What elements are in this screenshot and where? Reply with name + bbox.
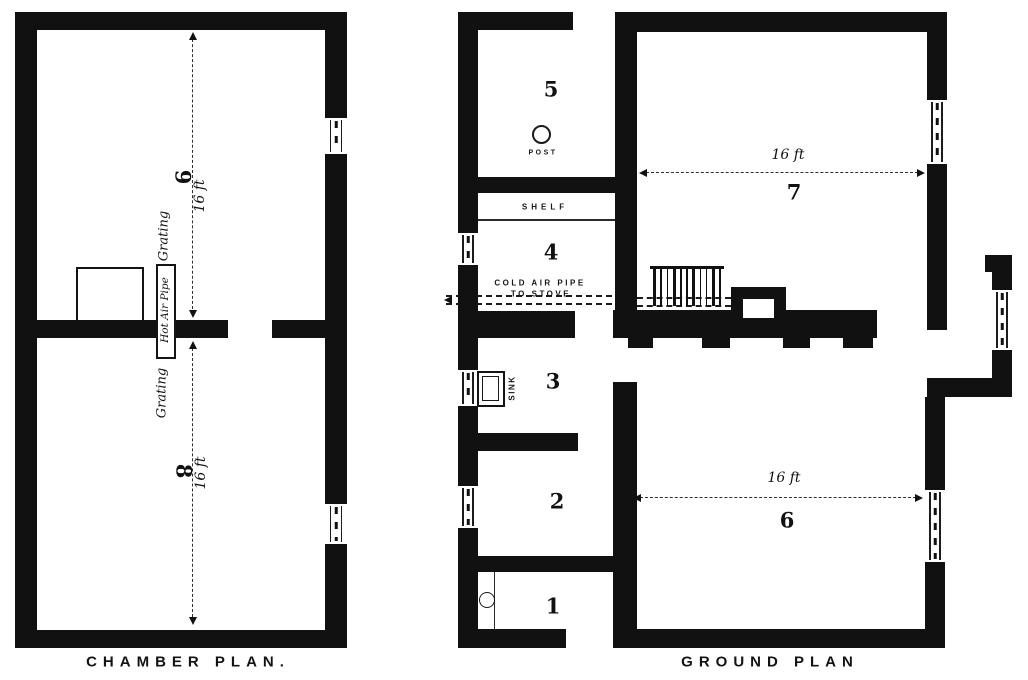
grating-upper-label: Grating bbox=[157, 211, 172, 261]
cold-air-label-2: TO STOVE bbox=[511, 290, 571, 299]
wall-segment bbox=[15, 12, 347, 30]
wall-segment bbox=[458, 311, 575, 338]
wall-segment bbox=[628, 338, 653, 348]
wall-segment bbox=[783, 338, 810, 348]
arrowhead-icon bbox=[444, 296, 452, 304]
arrowhead-icon bbox=[917, 169, 925, 177]
room-5-number: 5 bbox=[544, 77, 559, 102]
wall-segment bbox=[458, 433, 578, 451]
wall-segment bbox=[615, 12, 947, 32]
wall-segment bbox=[458, 629, 566, 648]
room-7-number: 7 bbox=[787, 180, 802, 205]
wall-segment bbox=[927, 12, 947, 330]
window-icon bbox=[992, 290, 1012, 350]
sink-label: SINK bbox=[508, 375, 517, 400]
shelf-label: SHELF bbox=[522, 203, 568, 212]
wall-segment bbox=[927, 378, 1012, 397]
wall-segment bbox=[15, 630, 347, 648]
arrowhead-icon bbox=[189, 341, 197, 349]
ground-plan-title: GROUND PLAN bbox=[681, 654, 859, 671]
wall-segment bbox=[458, 12, 573, 30]
room-1-number: 1 bbox=[546, 594, 561, 619]
window-icon bbox=[325, 504, 347, 544]
arrowhead-icon bbox=[633, 494, 641, 502]
fixture-icon bbox=[479, 592, 495, 608]
arrowhead-icon bbox=[639, 169, 647, 177]
floor-plan-sheet: Hot Air Pipe Grating Grating 9 16 ft 8 1… bbox=[0, 0, 1028, 680]
shelf-line bbox=[478, 219, 615, 221]
grating-lower-label: Grating bbox=[155, 368, 170, 418]
arrowhead-icon bbox=[915, 494, 923, 502]
room-3-number: 3 bbox=[546, 369, 561, 394]
arrowhead-icon bbox=[189, 617, 197, 625]
wall-segment bbox=[15, 320, 228, 338]
wall-segment bbox=[272, 320, 347, 338]
window-icon bbox=[325, 118, 347, 154]
window-icon bbox=[927, 100, 947, 164]
room-9-dimension: 16 ft bbox=[192, 179, 208, 212]
arrowhead-icon bbox=[189, 310, 197, 318]
cold-air-label-1: COLD AIR PIPE bbox=[494, 279, 585, 288]
hot-air-pipe-label: Hot Air Pipe bbox=[159, 277, 171, 343]
dimension-line bbox=[640, 497, 916, 498]
wall-segment bbox=[615, 12, 637, 312]
room-6-dimension: 16 ft bbox=[767, 470, 800, 486]
wall-segment bbox=[843, 338, 873, 348]
fireplace-opening bbox=[743, 299, 774, 318]
stairs-icon bbox=[650, 266, 724, 306]
arrowhead-icon bbox=[189, 32, 197, 40]
chimney-box bbox=[76, 267, 144, 320]
room-4-number: 4 bbox=[544, 240, 559, 265]
wall-segment bbox=[458, 177, 615, 193]
sink-basin bbox=[482, 376, 499, 401]
window-icon bbox=[458, 370, 478, 406]
window-icon bbox=[925, 490, 945, 562]
room-8-dimension: 16 ft bbox=[193, 456, 209, 489]
post-icon bbox=[532, 125, 551, 144]
wall-segment bbox=[458, 556, 615, 572]
wall-segment bbox=[613, 629, 945, 648]
room-7-dimension: 16 ft bbox=[771, 147, 804, 163]
post-label: POST bbox=[528, 150, 557, 157]
wall-segment bbox=[702, 338, 730, 348]
room-6-number: 6 bbox=[780, 508, 795, 533]
window-icon bbox=[458, 233, 478, 265]
window-icon bbox=[458, 486, 478, 528]
room-2-number: 2 bbox=[550, 489, 565, 514]
wall-segment bbox=[613, 382, 637, 648]
chamber-plan-title: CHAMBER PLAN. bbox=[86, 654, 290, 671]
dimension-line bbox=[646, 172, 918, 173]
